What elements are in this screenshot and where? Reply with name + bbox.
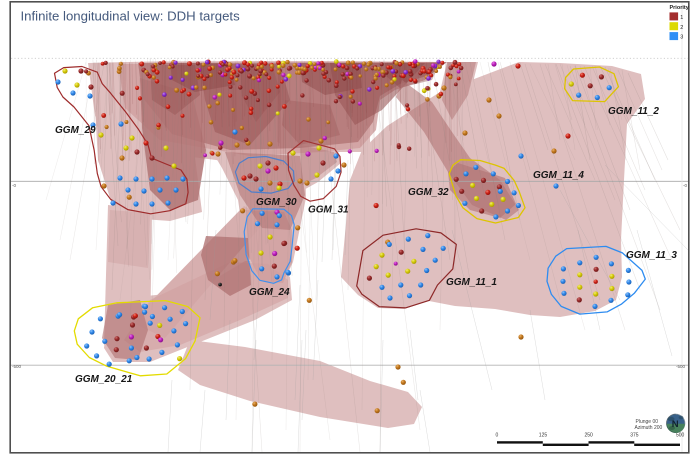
- svg-text:GGM_20_21: GGM_20_21: [75, 374, 133, 385]
- svg-text:375: 375: [630, 433, 639, 439]
- svg-text:GGM_11_4: GGM_11_4: [533, 170, 584, 181]
- svg-text:500: 500: [676, 433, 685, 439]
- svg-text:GGM_11_1: GGM_11_1: [446, 277, 497, 288]
- svg-text:Infinite longitudinal view: DD: Infinite longitudinal view: DDH targets: [21, 9, 241, 24]
- svg-text:2: 2: [680, 25, 683, 31]
- svg-text:GGM_30: GGM_30: [256, 197, 297, 208]
- svg-text:Azimuth 200: Azimuth 200: [635, 425, 663, 431]
- svg-text:125: 125: [539, 433, 548, 439]
- svg-text:GGM_31: GGM_31: [308, 205, 349, 216]
- svg-text:-500: -500: [12, 364, 22, 369]
- svg-text:-500: -500: [676, 364, 686, 369]
- svg-text:GGM_11_3: GGM_11_3: [626, 250, 677, 261]
- svg-text:GGM_24: GGM_24: [249, 287, 290, 298]
- svg-text:Priority: Priority: [670, 5, 690, 11]
- svg-text:1: 1: [680, 15, 683, 21]
- svg-text:GGM_11_2: GGM_11_2: [608, 106, 659, 117]
- svg-text:-0: -0: [12, 183, 16, 188]
- svg-text:250: 250: [585, 433, 594, 439]
- svg-text:0: 0: [496, 433, 499, 439]
- svg-text:GGM_29: GGM_29: [55, 125, 96, 136]
- svg-text:-0: -0: [683, 183, 687, 188]
- svg-text:N: N: [672, 419, 679, 430]
- svg-text:3: 3: [680, 35, 683, 41]
- svg-text:GGM_32: GGM_32: [408, 187, 449, 198]
